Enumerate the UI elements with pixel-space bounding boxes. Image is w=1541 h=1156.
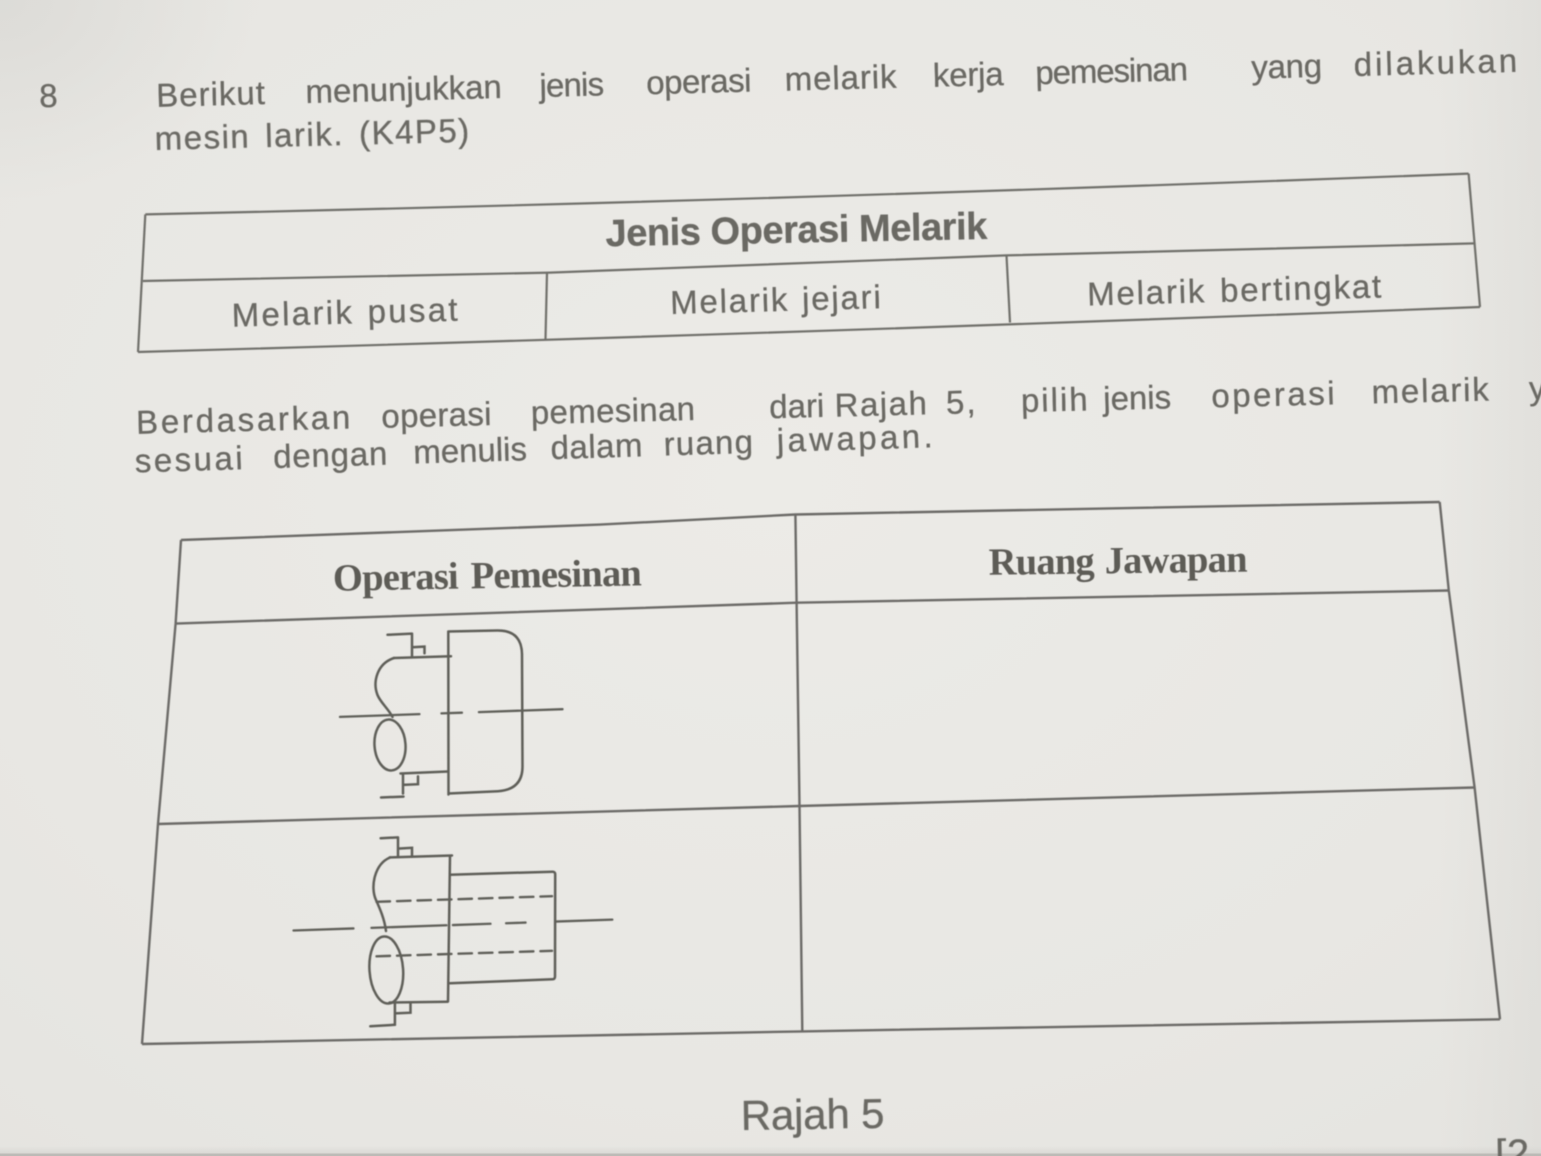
- svg-text:ruang: ruang: [663, 423, 754, 463]
- svg-text:pilih: pilih: [1020, 380, 1090, 419]
- svg-text:[2: [2: [1495, 1132, 1530, 1156]
- svg-text:Melarik pusat: Melarik pusat: [231, 291, 460, 334]
- svg-text:menulis: menulis: [413, 430, 528, 470]
- svg-text:yang: yang: [1251, 47, 1322, 86]
- svg-text:menunjukkan: menunjukkan: [305, 68, 502, 110]
- svg-text:Melarik jejari: Melarik jejari: [670, 278, 883, 321]
- svg-text:operasi: operasi: [646, 62, 752, 102]
- svg-text:dari: dari: [769, 387, 825, 425]
- svg-text:Berikut: Berikut: [156, 74, 267, 114]
- svg-text:8: 8: [39, 77, 58, 114]
- svg-text:dengan: dengan: [273, 435, 389, 475]
- svg-text:melarik: melarik: [1371, 371, 1491, 411]
- svg-text:dilakukan: dilakukan: [1353, 42, 1520, 83]
- svg-text:yang: yang: [1529, 368, 1541, 407]
- svg-text:Jenis Operasi Melarik: Jenis Operasi Melarik: [605, 206, 988, 255]
- svg-text:Berdasarkan: Berdasarkan: [136, 398, 354, 440]
- svg-text:dalam: dalam: [550, 426, 643, 466]
- svg-text:Operasi Pemesinan: Operasi Pemesinan: [333, 552, 642, 599]
- svg-text:kerja: kerja: [932, 55, 1004, 94]
- svg-text:jenis: jenis: [538, 65, 604, 104]
- svg-text:operasi: operasi: [381, 395, 492, 435]
- svg-text:sesuai: sesuai: [134, 439, 245, 479]
- svg-text:Rajah 5: Rajah 5: [740, 1090, 884, 1139]
- svg-text:operasi: operasi: [1211, 374, 1338, 414]
- svg-text:Ruang Jawapan: Ruang Jawapan: [988, 539, 1247, 584]
- svg-text:pemesinan: pemesinan: [1035, 50, 1187, 91]
- svg-text:5,: 5,: [946, 383, 978, 421]
- svg-text:jawapan.: jawapan.: [775, 417, 936, 459]
- svg-text:jenis: jenis: [1102, 378, 1172, 417]
- svg-text:melarik: melarik: [784, 58, 898, 98]
